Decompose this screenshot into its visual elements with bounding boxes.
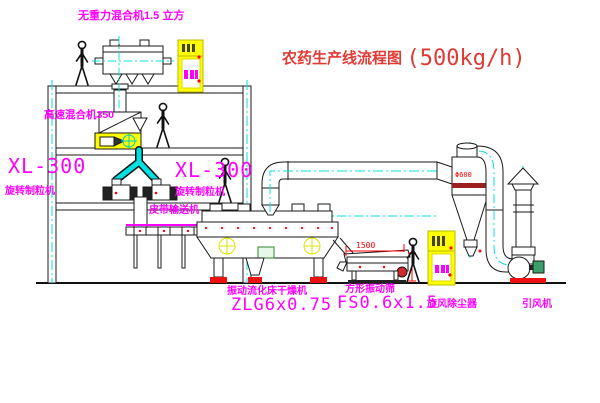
screen-model-label: FS0.6x1.5 <box>337 295 438 312</box>
flow-diagram: 农药生产线流程图 (500kg/h) 无重力混合机1.5 立方 高速混合机350… <box>0 0 600 403</box>
title-capacity: (500kg/h) <box>406 46 525 71</box>
granulator-name-left: 旋转制粒机 <box>5 187 55 197</box>
induced-draft-fan <box>508 255 546 283</box>
title-text: 农药生产线流程图 <box>282 50 402 67</box>
screen-dimension-label: 1500 <box>356 242 375 250</box>
diagram-title: 农药生产线流程图 (500kg/h) <box>282 46 526 71</box>
gravity-mixer-label: 无重力混合机1.5 立方 <box>78 11 184 22</box>
granulator-model-left: XL-300 <box>8 156 86 176</box>
cabinet-marking <box>184 70 188 79</box>
granulator-model-right: XL-300 <box>175 160 253 180</box>
dryer-tag <box>258 247 274 258</box>
belt-conveyor-label: 皮带输送机 <box>149 206 199 216</box>
granulator-left <box>103 179 137 200</box>
fan-motor <box>533 261 544 273</box>
granulator-right <box>143 179 177 200</box>
exhaust-duct <box>262 161 437 215</box>
belt-conveyor-machine <box>126 225 204 268</box>
fan-base <box>510 278 546 283</box>
cyclone-dimension-label: Φ600 <box>455 172 472 179</box>
worker-figure <box>407 238 419 282</box>
high-speed-mixer-label: 高速混合机350 <box>44 110 114 121</box>
control-cabinet-right <box>428 231 455 285</box>
dryer-model-label: ZLG6x0.75 <box>231 297 332 314</box>
control-cabinet-top <box>178 40 203 92</box>
fluid-bed-dryer-machine <box>197 204 338 283</box>
granulator-name-right: 旋转制粒机 <box>175 188 225 198</box>
gravity-mixer-machine <box>92 36 174 118</box>
cyclone-band <box>452 183 488 188</box>
cabinet-marking <box>435 265 439 273</box>
fan-label: 引风机 <box>522 300 552 310</box>
discharge-chute <box>134 197 147 227</box>
cyclone-label: 旋风除尘器 <box>427 300 477 310</box>
worker-figure <box>76 41 88 85</box>
worker-figure <box>157 103 169 147</box>
